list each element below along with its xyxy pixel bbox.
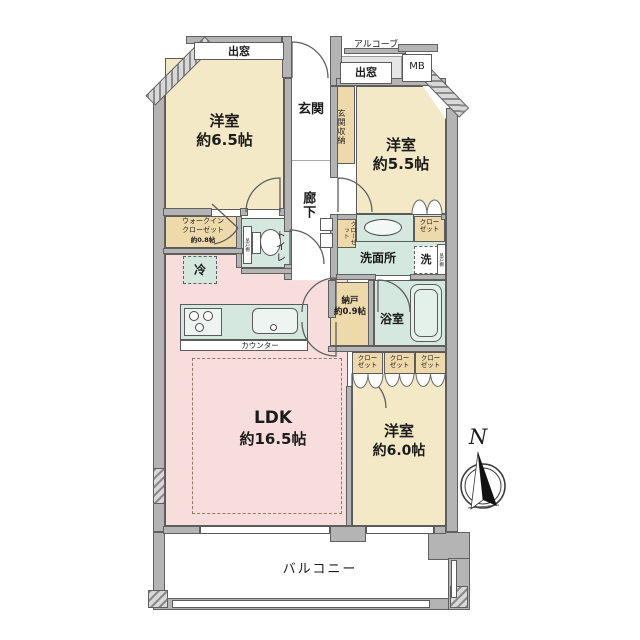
wall-segment [428,532,470,560]
compass [461,452,505,509]
bedroom-6-5-label: 洋室 約6.5帖 [165,112,284,150]
wall-segment [163,248,243,254]
wall-segment [163,526,200,534]
alcove-label: アルコーブ [336,40,416,51]
window-hatch [153,468,165,504]
window-ldk [200,526,330,534]
stove-burner [189,311,199,321]
washbasin-sink [364,219,402,236]
walk-in-closet-label: ウォークイン クローゼット 約0.8帖 [165,217,241,245]
wall-segment [153,90,165,532]
hall-cabinet [320,233,333,248]
closet-3-label: クローゼット [418,355,443,370]
wall-segment [330,526,366,542]
sink-drain [270,324,277,331]
wall-segment [241,268,292,274]
hallway-label: 廊下 [299,180,315,230]
wall-segment [240,208,248,216]
counter-label: カウンター [215,341,305,350]
stove-burner [195,323,204,332]
drain-pipe [451,560,457,598]
ldk-label: LDK 約16.5帖 [198,408,348,451]
bathroom-label: 浴室 [372,312,412,327]
window-bedroom-6-0 [366,526,434,534]
toilet-shelf-label: 吊戸棚 [244,230,250,260]
bathtub-inner [414,289,438,337]
compass-needle-white [471,452,483,509]
closet-2-label: クローゼット [387,355,412,370]
toilet-label: トイレ [272,226,285,266]
bay-window-left-label: 出窓 [194,45,284,59]
hall-cabinet [320,218,333,231]
closet-1-label: クローゼット [355,355,380,370]
balcony-railing [172,600,430,608]
bedroom-5-5-label: 洋室 約5.5帖 [356,136,446,174]
wall-segment [434,526,446,534]
meter-box-label: MB [402,61,432,74]
bay-window-right-label: 出窓 [340,66,392,80]
balcony-label: バルコニー [250,562,390,578]
entrance-label: 玄関 [290,102,332,118]
compass-needle-black [478,452,497,506]
bedroom-6-0-label: 洋室 約6.0帖 [352,422,446,460]
stove-burner [203,311,213,321]
wall-segment [163,208,212,216]
washing-machine-label: 洗 [414,253,438,267]
storage-nando-label: 納戸 約0.9帖 [328,296,372,317]
compass-north-label: N [458,424,498,450]
entrance-door [292,42,328,78]
closet-washroom-label: クローゼット [417,219,442,234]
wall-segment [328,346,446,352]
washroom-shelf-label: 吊戸棚 [438,246,444,273]
wall-segment [446,108,458,532]
toilet-door [290,230,324,264]
closet-vertical-label: クローゼット [335,218,355,247]
floor-plan: 出窓 アルコーブ 出窓 MB 洋室 約6.5帖 玄関 玄関収納 洋室 約5.5帖… [0,0,640,640]
window-hatch [148,590,168,608]
washroom-label: 洗面所 [346,251,410,266]
entrance-storage-label: 玄関収納 [336,92,346,162]
refrigerator-label: 冷 [183,263,217,278]
entrance-step [292,160,330,161]
